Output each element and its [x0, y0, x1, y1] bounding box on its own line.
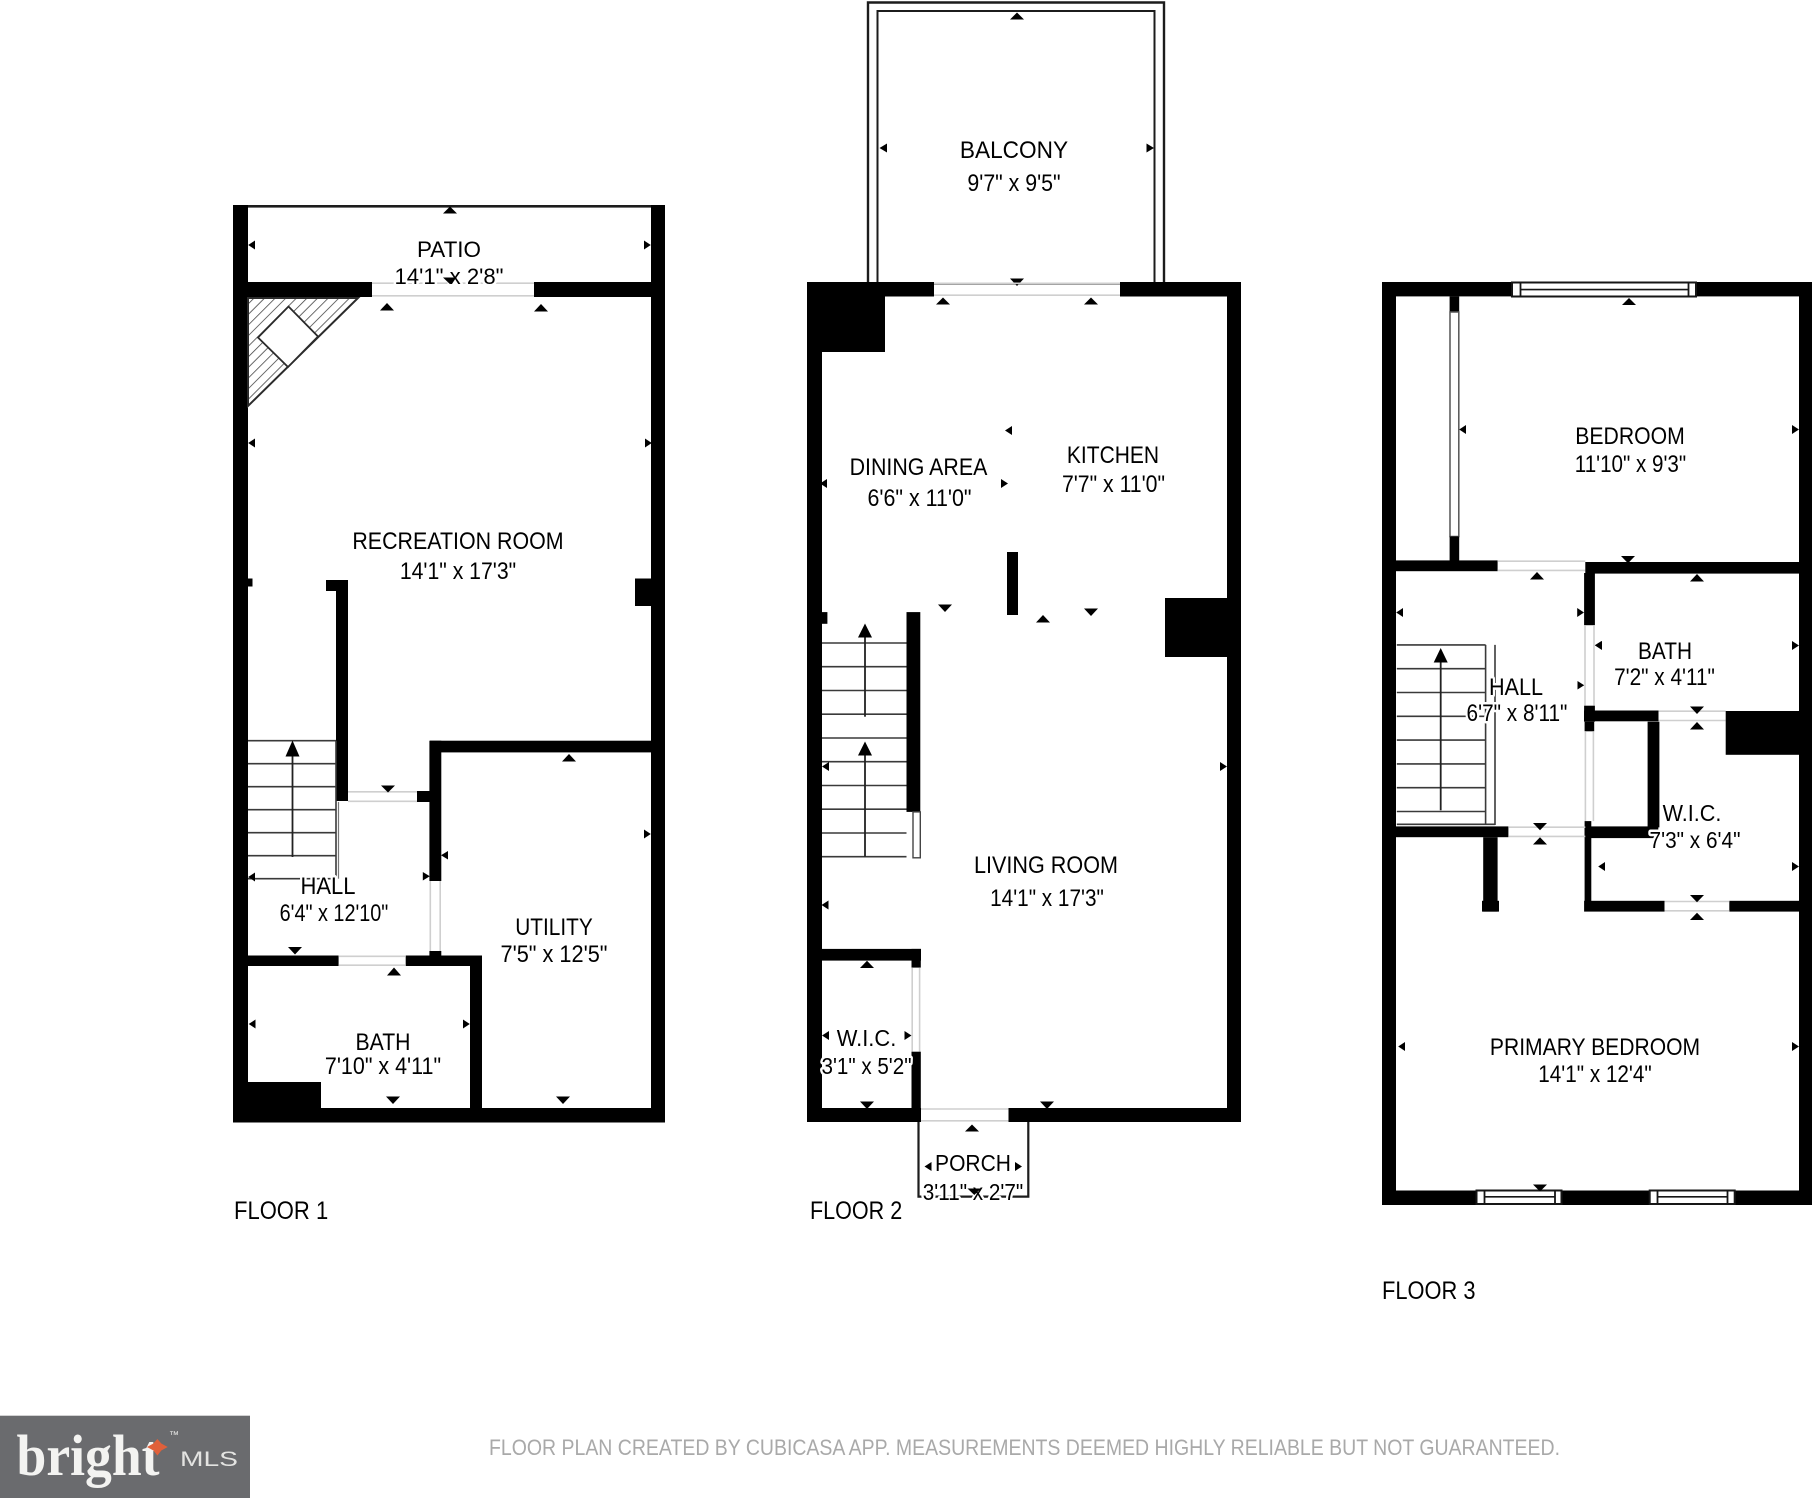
svg-text:bright: bright [17, 1423, 161, 1488]
svg-text:14'1" x 17'3": 14'1" x 17'3" [990, 885, 1104, 912]
svg-text:KITCHEN: KITCHEN [1067, 442, 1159, 469]
svg-text:MLS: MLS [180, 1448, 238, 1471]
svg-text:BEDROOM: BEDROOM [1575, 423, 1685, 450]
svg-text:UTILITY: UTILITY [515, 914, 592, 941]
svg-text:14'1" x 12'4": 14'1" x 12'4" [1538, 1061, 1651, 1088]
svg-text:14'1" x 2'8": 14'1" x 2'8" [395, 264, 504, 289]
svg-text:FLOOR 2: FLOOR 2 [810, 1197, 902, 1225]
svg-text:6'6" x 11'0": 6'6" x 11'0" [867, 485, 971, 512]
svg-text:6'7" x 8'11": 6'7" x 8'11" [1467, 700, 1568, 727]
svg-text:PORCH: PORCH [935, 1150, 1011, 1176]
svg-text:7'5" x 12'5": 7'5" x 12'5" [501, 941, 608, 968]
svg-text:W.I.C.: W.I.C. [1663, 800, 1722, 826]
svg-text:W.I.C.: W.I.C. [837, 1025, 897, 1051]
svg-text:9'7" x 9'5": 9'7" x 9'5" [967, 170, 1060, 197]
svg-text:FLOOR PLAN CREATED BY CUBICASA: FLOOR PLAN CREATED BY CUBICASA APP. MEAS… [489, 1435, 1560, 1460]
svg-text:™: ™ [169, 1430, 179, 1441]
svg-text:7'2" x 4'11": 7'2" x 4'11" [1614, 664, 1715, 691]
svg-text:BALCONY: BALCONY [960, 137, 1068, 164]
svg-text:BATH: BATH [1638, 638, 1692, 665]
svg-text:PRIMARY BEDROOM: PRIMARY BEDROOM [1490, 1034, 1700, 1061]
svg-text:3'1" x 5'2": 3'1" x 5'2" [822, 1053, 912, 1079]
svg-text:HALL: HALL [1489, 674, 1543, 701]
svg-text:RECREATION ROOM: RECREATION ROOM [352, 528, 563, 555]
svg-text:PATIO: PATIO [417, 237, 481, 262]
svg-text:HALL: HALL [301, 873, 356, 900]
svg-text:14'1" x 17'3": 14'1" x 17'3" [400, 558, 516, 585]
svg-text:6'4" x 12'10": 6'4" x 12'10" [280, 900, 389, 927]
svg-text:BATH: BATH [356, 1029, 411, 1056]
svg-text:FLOOR 1: FLOOR 1 [234, 1197, 328, 1225]
svg-text:11'10" x 9'3": 11'10" x 9'3" [1575, 451, 1686, 478]
svg-text:7'10" x 4'11": 7'10" x 4'11" [325, 1053, 441, 1080]
svg-text:7'7" x 11'0": 7'7" x 11'0" [1062, 471, 1165, 498]
svg-text:DINING AREA: DINING AREA [850, 454, 988, 481]
svg-text:7'3" x 6'4": 7'3" x 6'4" [1650, 827, 1741, 853]
svg-text:LIVING ROOM: LIVING ROOM [974, 852, 1118, 879]
svg-text:FLOOR 3: FLOOR 3 [1382, 1277, 1476, 1305]
